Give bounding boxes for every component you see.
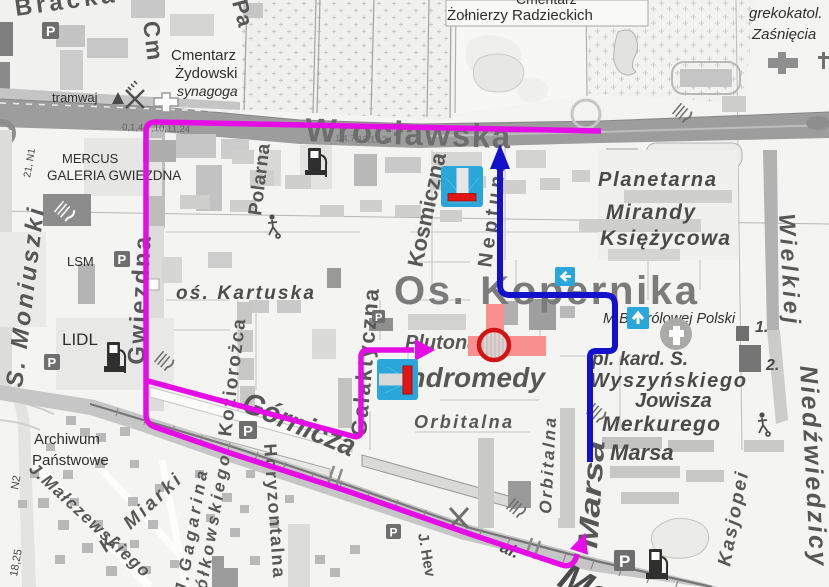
svg-text:2.: 2. bbox=[765, 357, 779, 374]
svg-text:Wyszyńskiego: Wyszyńskiego bbox=[590, 370, 746, 392]
svg-text:LSM: LSM bbox=[67, 254, 94, 269]
svg-text:P: P bbox=[390, 526, 398, 540]
svg-text:synagoga: synagoga bbox=[177, 83, 238, 99]
svg-text:Cmentarz: Cmentarz bbox=[171, 47, 236, 64]
svg-text:Cm: Cm bbox=[138, 19, 169, 63]
svg-text:Zaśnięcia: Zaśnięcia bbox=[751, 26, 816, 43]
svg-text:P: P bbox=[619, 552, 630, 571]
svg-text:Os. Kopernika: Os. Kopernika bbox=[394, 269, 698, 313]
svg-text:Archiwum: Archiwum bbox=[34, 431, 100, 448]
svg-text:Cmentarz: Cmentarz bbox=[516, 0, 577, 7]
svg-text:Marsa: Marsa bbox=[610, 440, 674, 465]
svg-text:P: P bbox=[243, 423, 253, 440]
svg-text:Księżycowa: Księżycowa bbox=[600, 227, 730, 250]
svg-text:P: P bbox=[48, 355, 57, 370]
svg-text:Jowisza: Jowisza bbox=[635, 390, 712, 412]
svg-text:P: P bbox=[46, 23, 55, 39]
svg-text:GALERIA GWIEZDNA: GALERIA GWIEZDNA bbox=[47, 168, 181, 183]
svg-text:Żołnierzy Radzieckich: Żołnierzy Radzieckich bbox=[447, 6, 593, 24]
svg-text:tramwaj: tramwaj bbox=[52, 90, 98, 105]
svg-text:Żydowski: Żydowski bbox=[175, 64, 238, 82]
svg-text:P: P bbox=[118, 252, 127, 267]
svg-text:1.: 1. bbox=[755, 319, 768, 336]
svg-text:oś. Kartuska: oś. Kartuska bbox=[176, 283, 314, 304]
svg-text:MERCUS: MERCUS bbox=[62, 151, 119, 166]
svg-text:grekokatol.: grekokatol. bbox=[749, 5, 822, 22]
svg-text:LIDL: LIDL bbox=[62, 330, 98, 349]
svg-text:N2: N2 bbox=[9, 475, 23, 491]
svg-text:Mirandy: Mirandy bbox=[606, 201, 696, 224]
svg-text:Planetarna: Planetarna bbox=[598, 169, 716, 191]
svg-text:P: P bbox=[375, 312, 382, 324]
